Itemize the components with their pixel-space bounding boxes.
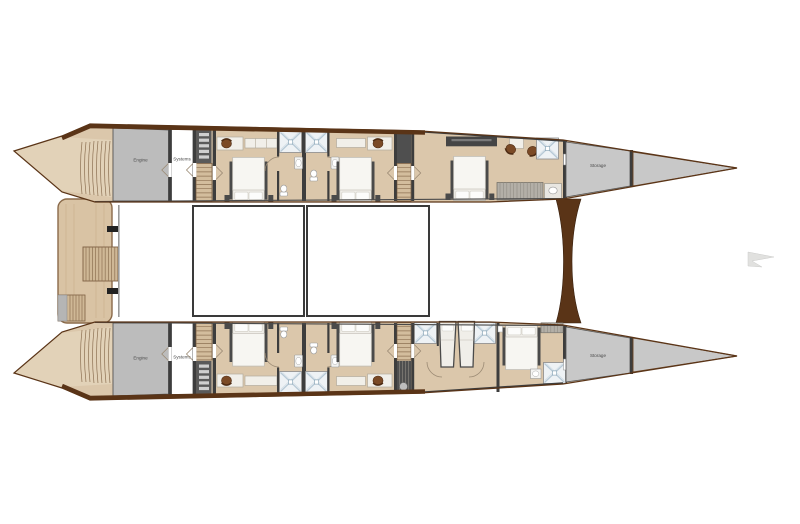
mooring-cleat bbox=[107, 288, 119, 294]
boarding-steps bbox=[58, 295, 85, 321]
systems-room-label: Systems bbox=[173, 157, 191, 162]
floor-plan-page: Engine Systems bbox=[0, 0, 800, 524]
ensuite-shower bbox=[474, 323, 496, 344]
toilet bbox=[310, 343, 318, 354]
washbasin bbox=[295, 355, 303, 367]
companionway-stairs bbox=[397, 323, 411, 361]
ensuite-shower bbox=[280, 132, 302, 153]
bridge-deck-opening-1 bbox=[193, 206, 304, 316]
cabinet-inlay bbox=[452, 139, 492, 141]
nightstand bbox=[375, 195, 380, 202]
companionway-stairs bbox=[397, 164, 411, 202]
desk-chair bbox=[373, 139, 383, 148]
lower-hull: Engine Systems bbox=[14, 322, 737, 401]
bow-tip bbox=[633, 152, 737, 186]
long-cabinet bbox=[446, 137, 497, 147]
engine-room-label: Engine bbox=[133, 356, 148, 361]
double-bed bbox=[337, 158, 375, 202]
washbasin bbox=[295, 157, 303, 169]
platform-stairs bbox=[83, 247, 118, 281]
ensuite-shower bbox=[280, 372, 302, 393]
forward-crossbeam bbox=[556, 199, 581, 323]
bridge-deck bbox=[58, 199, 774, 323]
bench bbox=[337, 139, 366, 148]
ensuite-shower bbox=[306, 372, 328, 393]
ensuite-shower bbox=[306, 132, 328, 153]
toilet bbox=[280, 327, 288, 338]
bowsprit-mark bbox=[748, 252, 774, 267]
vanity-unit bbox=[545, 184, 562, 199]
lower-transom-steps bbox=[14, 327, 112, 388]
double-bed bbox=[337, 322, 375, 366]
ensuite-shower bbox=[544, 363, 566, 384]
cabinet bbox=[397, 130, 411, 163]
lower-systems-room: Systems bbox=[172, 323, 194, 395]
companionway-stairs bbox=[196, 323, 212, 361]
lower-shelf-unit bbox=[197, 361, 212, 395]
wardrobe bbox=[497, 183, 543, 201]
upper-hull: Engine Systems bbox=[14, 124, 737, 202]
toilet bbox=[310, 170, 318, 181]
systems-room-label: Systems bbox=[173, 355, 191, 360]
nightstand bbox=[375, 323, 380, 330]
double-bed bbox=[451, 157, 489, 201]
double-bed bbox=[503, 326, 541, 370]
toilet bbox=[280, 185, 288, 196]
upper-systems-room: Systems bbox=[172, 130, 194, 202]
bench bbox=[337, 377, 366, 386]
storage-label: Storage bbox=[590, 353, 607, 358]
twin-bed bbox=[458, 322, 475, 368]
washbasin bbox=[531, 369, 542, 379]
nightstand bbox=[498, 326, 503, 332]
double-bed bbox=[230, 158, 268, 202]
double-bed bbox=[230, 322, 268, 366]
upper-transom-steps bbox=[14, 136, 112, 197]
upper-shelf-unit bbox=[197, 130, 212, 164]
storage-label: Storage bbox=[590, 163, 607, 168]
desk-chair bbox=[373, 376, 383, 385]
ensuite-shower bbox=[415, 323, 437, 344]
bridge-deck-opening-2 bbox=[307, 206, 429, 316]
stool bbox=[400, 383, 408, 391]
desk-chair bbox=[222, 376, 232, 385]
aft-crossbeam-line bbox=[118, 205, 120, 317]
lower-engine-room: Engine bbox=[113, 323, 169, 396]
upper-engine-room: Engine bbox=[113, 128, 169, 201]
engine-room-label: Engine bbox=[133, 158, 148, 163]
mooring-cleat bbox=[107, 226, 119, 232]
companionway-stairs bbox=[196, 164, 212, 202]
dresser bbox=[245, 376, 277, 386]
twin-bed bbox=[440, 322, 457, 368]
desk-chair bbox=[222, 139, 232, 148]
catamaran-floor-plan: Engine Systems bbox=[0, 0, 800, 524]
dresser bbox=[245, 139, 277, 149]
bow-tip bbox=[633, 338, 737, 372]
